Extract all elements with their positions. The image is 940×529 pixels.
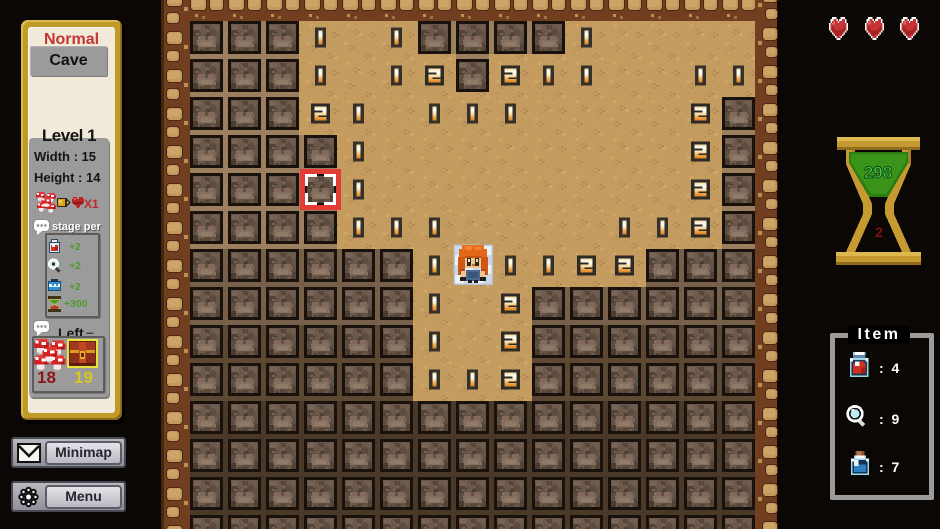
svg-text:298: 298	[864, 163, 892, 182]
svg-text:2: 2	[875, 224, 883, 240]
